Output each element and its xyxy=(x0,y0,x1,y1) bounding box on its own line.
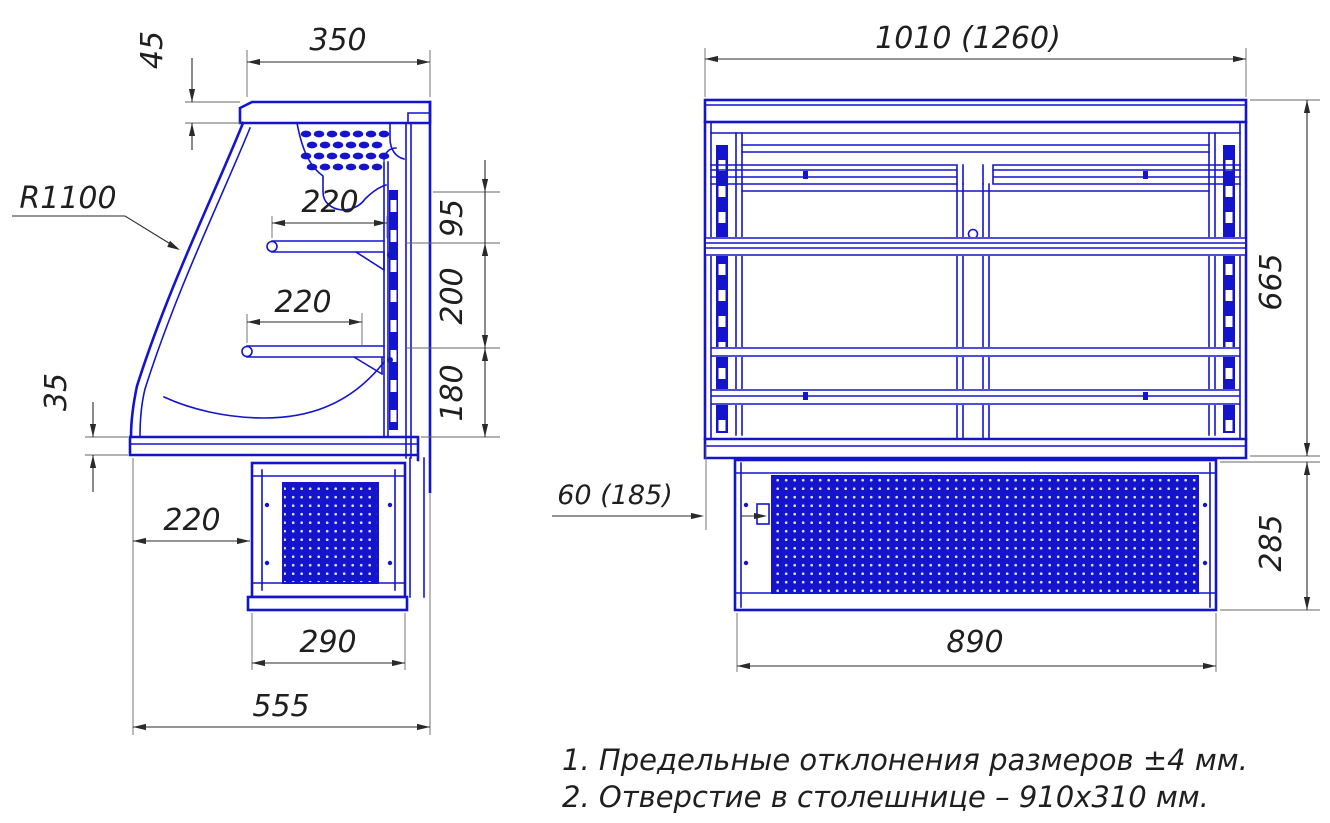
dim-gap-180: 180 xyxy=(435,364,470,421)
dim-canopy-height: 45 xyxy=(135,31,170,69)
dim-base-setback: 220 xyxy=(163,503,220,538)
note-tolerances: 1. Предельные отклонения размеров ±4 мм. xyxy=(562,743,1248,777)
technical-drawing-svg: 350 45 R1100 220 220 xyxy=(0,0,1330,823)
drawing-sheet: 350 45 R1100 220 220 xyxy=(0,0,1330,823)
dim-gap-95: 95 xyxy=(435,199,470,237)
dim-canopy-width: 350 xyxy=(309,23,366,58)
dim-body-height: 665 xyxy=(1254,253,1289,310)
side-lower-shelf xyxy=(242,346,393,374)
vent-grille xyxy=(301,131,390,171)
side-perforated-panel xyxy=(283,483,378,583)
side-upper-shelf xyxy=(267,241,393,270)
front-view-base xyxy=(735,460,1216,610)
side-view-dimensions: 350 45 R1100 220 220 xyxy=(12,23,500,735)
note-countertop-cutout: 2. Отверстие в столешнице – 910x310 мм. xyxy=(562,780,1209,814)
curved-glass-inner xyxy=(140,128,250,437)
side-base-foot-band xyxy=(248,597,407,610)
panel-mount-bracket xyxy=(757,504,769,524)
dim-base-width: 890 xyxy=(946,625,1003,660)
curved-glass-outer xyxy=(131,123,243,437)
front-view-body xyxy=(705,100,1246,458)
front-canopy xyxy=(705,100,1246,122)
dim-base-depth: 290 xyxy=(299,625,356,660)
dim-deck-band-height: 35 xyxy=(39,373,74,411)
dim-upper-shelf-depth: 220 xyxy=(301,185,358,220)
dim-overall-depth: 555 xyxy=(252,689,309,724)
dim-overall-width: 1010 (1260) xyxy=(875,21,1061,56)
dim-glass-radius: R1100 xyxy=(19,181,116,216)
dim-lower-shelf-depth: 220 xyxy=(274,285,331,320)
front-perforated-panel xyxy=(772,476,1198,593)
side-section-view: 350 45 R1100 220 220 xyxy=(12,23,500,735)
front-view: 1010 (1260) 665 285 60 (185) 890 xyxy=(552,21,1320,672)
side-view-base xyxy=(248,458,424,610)
side-canopy xyxy=(240,102,430,123)
display-deck-curve xyxy=(164,362,384,418)
dim-gap-200: 200 xyxy=(435,267,470,324)
side-shelf-mount-strip xyxy=(389,190,398,430)
drawing-notes: 1. Предельные отклонения размеров ±4 мм.… xyxy=(562,743,1248,814)
dim-base-side-inset: 60 (185) xyxy=(557,480,673,511)
dim-base-height: 285 xyxy=(1254,514,1289,571)
